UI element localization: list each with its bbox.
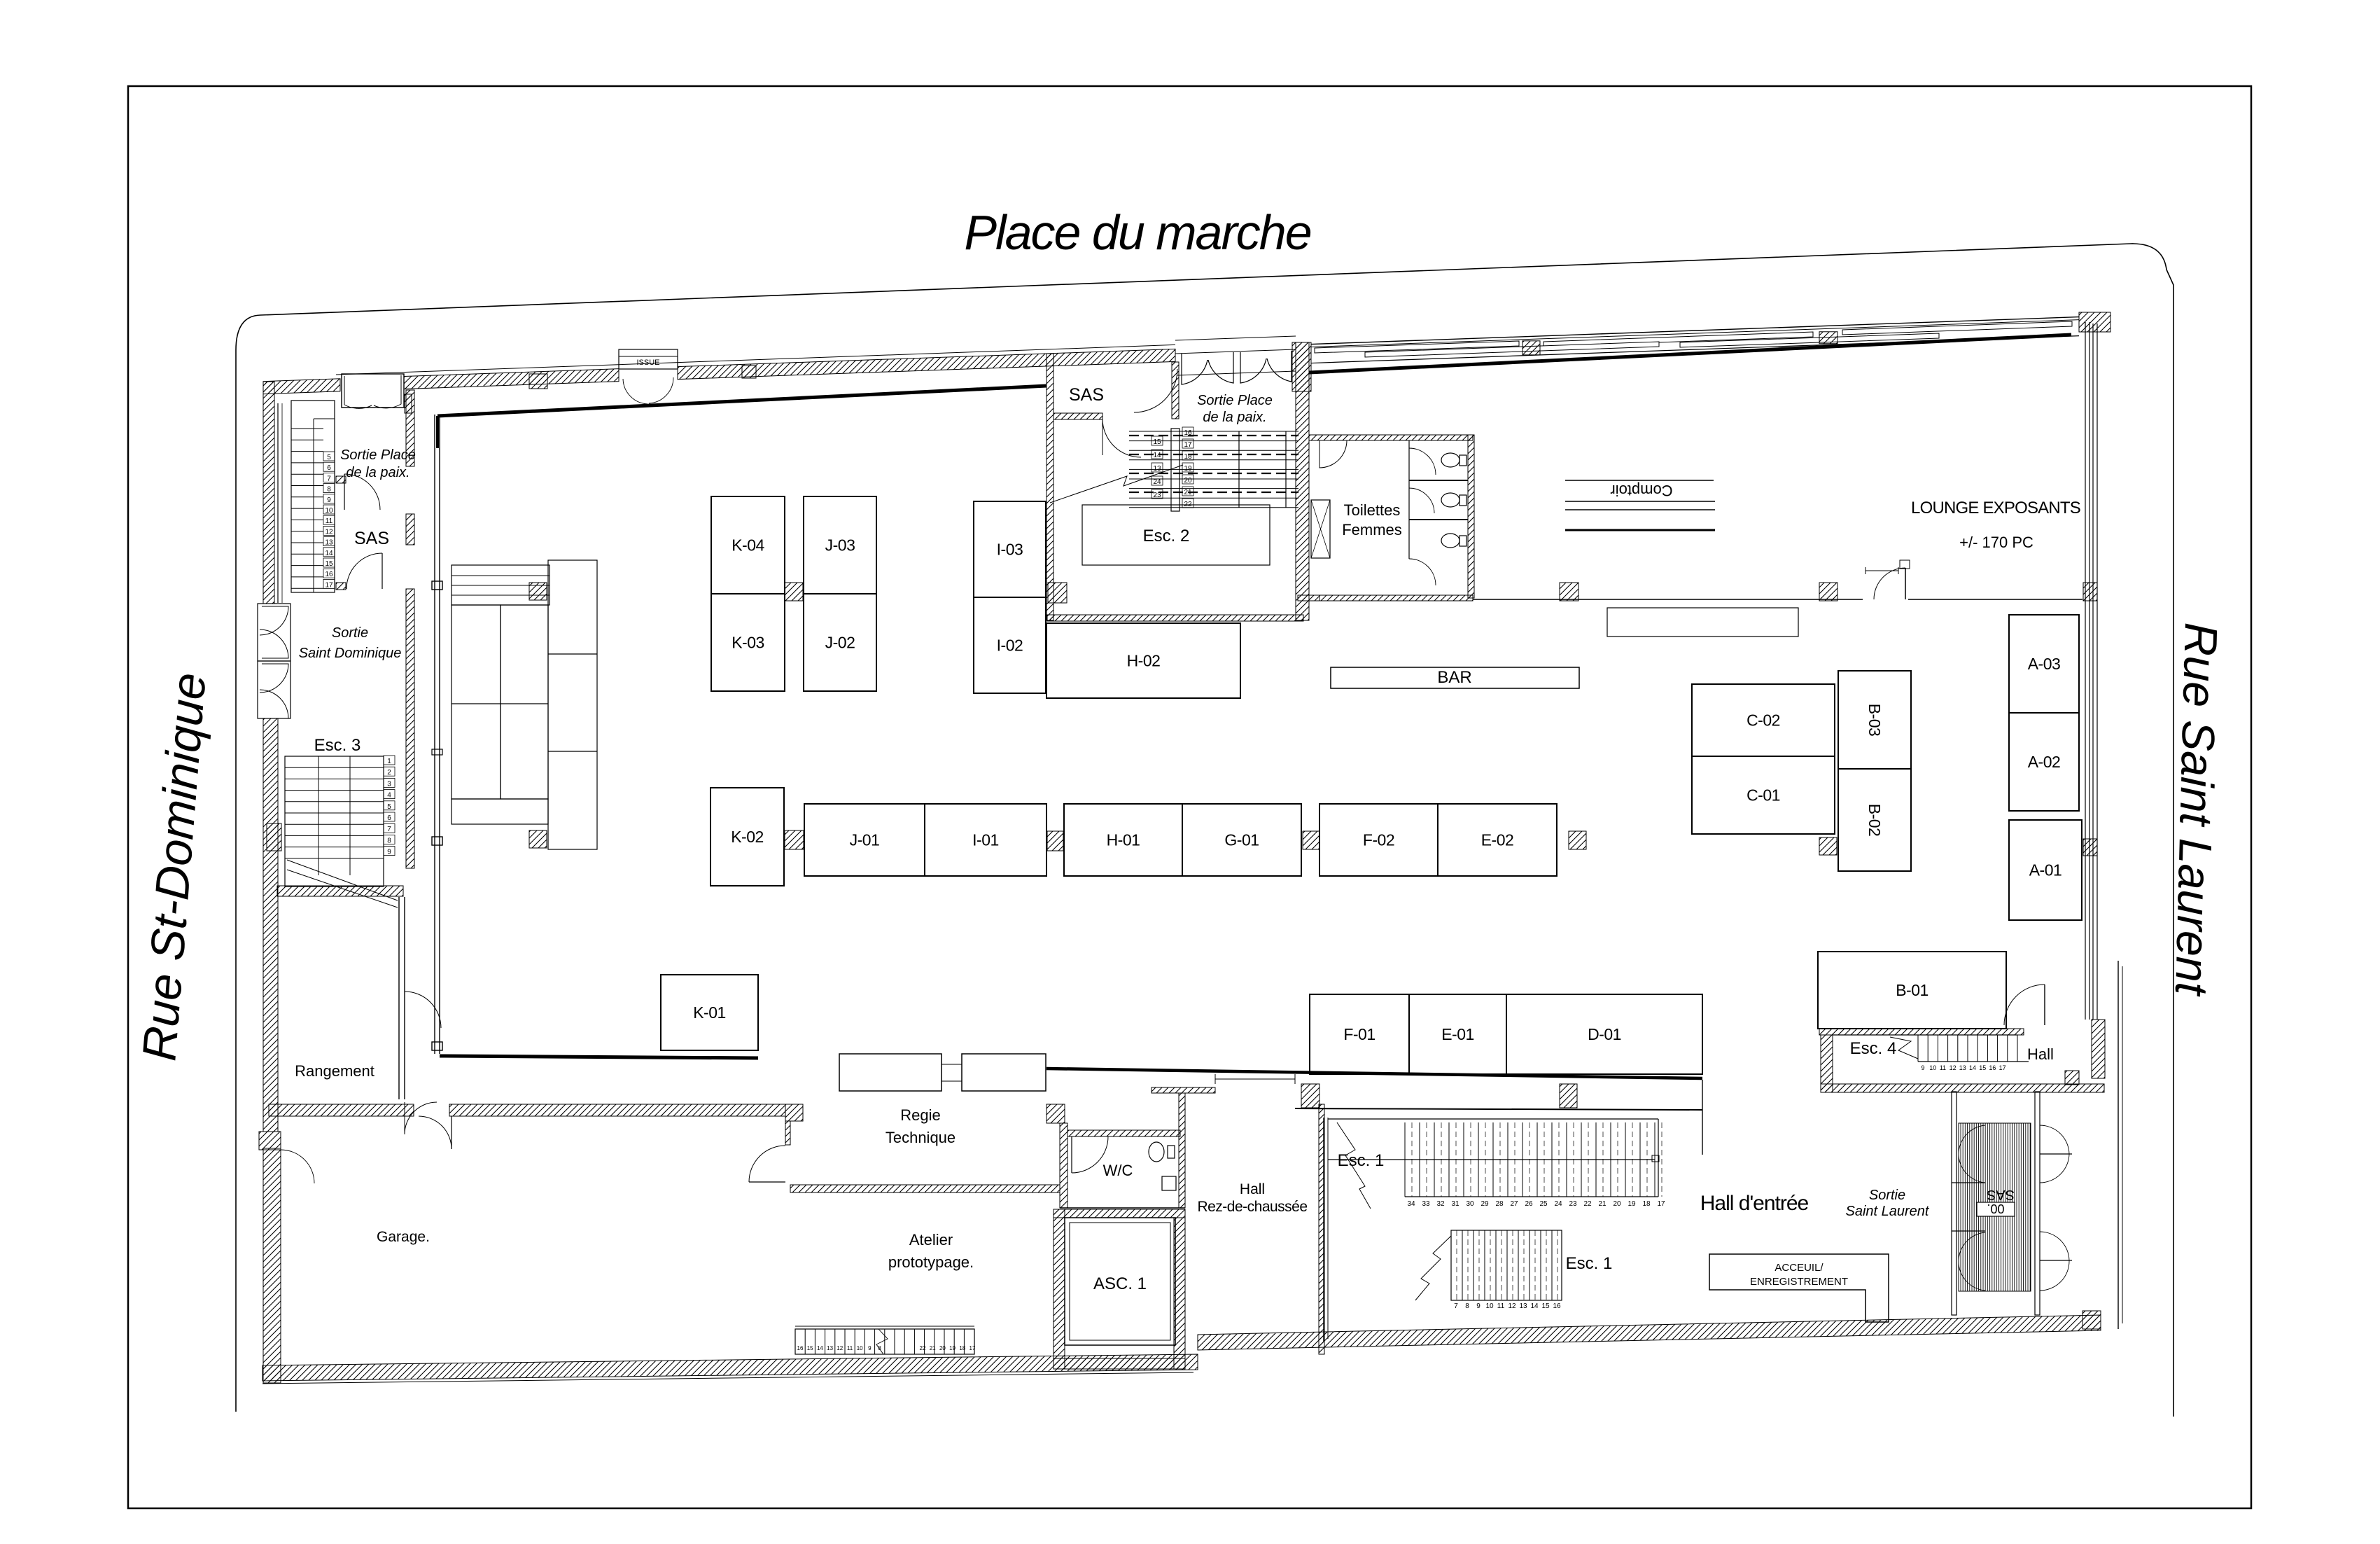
svg-text:9: 9 xyxy=(1921,1064,1924,1071)
svg-text:de la paix.: de la paix. xyxy=(346,465,409,480)
svg-text:B-02: B-02 xyxy=(1865,804,1884,837)
svg-text:00.: 00. xyxy=(1987,1202,2004,1216)
svg-text:14: 14 xyxy=(1530,1302,1539,1310)
svg-text:13: 13 xyxy=(1959,1064,1966,1071)
svg-text:prototypage.: prototypage. xyxy=(888,1253,974,1271)
svg-text:11: 11 xyxy=(1940,1064,1946,1071)
svg-text:11: 11 xyxy=(325,517,333,525)
svg-text:25: 25 xyxy=(1539,1200,1548,1208)
svg-text:12: 12 xyxy=(1508,1302,1516,1310)
svg-text:28: 28 xyxy=(1495,1200,1504,1208)
svg-text:32: 32 xyxy=(1436,1200,1445,1208)
svg-text:K-01: K-01 xyxy=(693,1003,726,1022)
svg-text:6: 6 xyxy=(327,464,331,472)
svg-text:27: 27 xyxy=(1510,1200,1518,1208)
svg-text:J-03: J-03 xyxy=(825,536,855,555)
svg-text:I-02: I-02 xyxy=(997,637,1023,655)
svg-text:Rangement: Rangement xyxy=(295,1062,374,1080)
svg-text:18: 18 xyxy=(1184,453,1192,461)
svg-text:H-02: H-02 xyxy=(1127,652,1161,670)
svg-text:13: 13 xyxy=(325,539,333,547)
svg-text:Sortie Place: Sortie Place xyxy=(340,447,416,463)
svg-text:Garage.: Garage. xyxy=(377,1229,430,1245)
svg-text:20: 20 xyxy=(939,1345,946,1351)
svg-text:22: 22 xyxy=(920,1345,926,1351)
svg-text:Esc. 4: Esc. 4 xyxy=(1850,1039,1897,1058)
svg-text:9: 9 xyxy=(327,496,331,504)
svg-text:15: 15 xyxy=(1541,1302,1550,1310)
svg-text:12: 12 xyxy=(836,1345,843,1351)
svg-text:A-03: A-03 xyxy=(2028,655,2061,673)
svg-text:13: 13 xyxy=(827,1345,833,1351)
svg-text:19: 19 xyxy=(949,1345,955,1351)
svg-text:Hall: Hall xyxy=(2027,1045,2054,1063)
svg-text:19: 19 xyxy=(1627,1200,1636,1208)
svg-text:17: 17 xyxy=(1657,1200,1665,1208)
svg-text:17: 17 xyxy=(1184,441,1192,449)
svg-text:15: 15 xyxy=(1979,1064,1986,1071)
svg-text:K-03: K-03 xyxy=(731,634,764,652)
svg-text:11: 11 xyxy=(1497,1302,1505,1310)
svg-text:21: 21 xyxy=(1598,1200,1606,1208)
svg-text:B-03: B-03 xyxy=(1865,704,1884,737)
svg-text:Rez-de-chaussée: Rez-de-chaussée xyxy=(1197,1199,1307,1215)
svg-text:K-02: K-02 xyxy=(731,828,764,846)
svg-text:9: 9 xyxy=(387,849,391,856)
svg-text:E-01: E-01 xyxy=(1441,1025,1474,1043)
svg-text:8: 8 xyxy=(1465,1302,1469,1310)
svg-text:Place du marche: Place du marche xyxy=(964,205,1310,260)
svg-text:20: 20 xyxy=(1184,477,1192,485)
svg-text:21: 21 xyxy=(1184,489,1192,496)
svg-text:15: 15 xyxy=(807,1345,813,1351)
svg-text:I-01: I-01 xyxy=(972,831,999,849)
svg-text:ISSUE: ISSUE xyxy=(636,359,659,367)
svg-text:7: 7 xyxy=(387,826,391,833)
svg-text:de la paix.: de la paix. xyxy=(1203,410,1266,425)
svg-text:Esc. 1: Esc. 1 xyxy=(1566,1254,1613,1273)
svg-text:34: 34 xyxy=(1407,1200,1415,1208)
svg-text:14: 14 xyxy=(817,1345,823,1351)
svg-text:21: 21 xyxy=(930,1345,936,1351)
svg-text:2: 2 xyxy=(387,769,391,777)
svg-text:Sortie: Sortie xyxy=(1869,1188,1905,1203)
svg-text:13: 13 xyxy=(1519,1302,1527,1310)
svg-text:Saint Dominique: Saint Dominique xyxy=(299,646,402,661)
svg-text:I-03: I-03 xyxy=(997,541,1023,559)
svg-text:8: 8 xyxy=(327,486,331,494)
svg-text:Toilettes: Toilettes xyxy=(1344,501,1401,519)
svg-text:BAR: BAR xyxy=(1437,668,1471,687)
svg-text:17: 17 xyxy=(325,581,333,589)
svg-text:J-02: J-02 xyxy=(825,634,855,652)
svg-text:Esc. 2: Esc. 2 xyxy=(1143,527,1190,545)
svg-text:Regie: Regie xyxy=(900,1106,940,1124)
svg-text:J-01: J-01 xyxy=(850,831,880,849)
svg-text:5: 5 xyxy=(327,454,331,461)
svg-text:ACCEUIL/: ACCEUIL/ xyxy=(1774,1262,1823,1274)
svg-text:A-01: A-01 xyxy=(2029,861,2062,879)
svg-text:26: 26 xyxy=(1525,1200,1533,1208)
svg-text:Technique: Technique xyxy=(885,1129,955,1146)
svg-text:C-02: C-02 xyxy=(1746,711,1780,730)
svg-text:E-02: E-02 xyxy=(1481,831,1514,849)
svg-text:ASC. 1: ASC. 1 xyxy=(1093,1274,1147,1293)
svg-text:7: 7 xyxy=(1454,1302,1458,1310)
svg-text:Femmes: Femmes xyxy=(1342,521,1402,538)
svg-text:C-01: C-01 xyxy=(1746,786,1780,805)
svg-text:10: 10 xyxy=(857,1345,863,1351)
svg-text:F-02: F-02 xyxy=(1363,831,1394,849)
svg-text:23: 23 xyxy=(1153,492,1161,499)
svg-text:ENREGISTREMENT: ENREGISTREMENT xyxy=(1750,1276,1848,1288)
svg-text:SAS: SAS xyxy=(354,529,389,548)
svg-text:18: 18 xyxy=(1642,1200,1651,1208)
svg-text:17: 17 xyxy=(969,1345,976,1351)
svg-text:Saint Laurent: Saint Laurent xyxy=(1846,1204,1930,1219)
svg-text:9: 9 xyxy=(1476,1302,1480,1310)
svg-text:14: 14 xyxy=(1969,1064,1976,1071)
svg-text:4: 4 xyxy=(387,792,391,800)
svg-text:17: 17 xyxy=(1999,1064,2006,1071)
svg-text:15: 15 xyxy=(325,560,333,568)
svg-text:Sortie: Sortie xyxy=(332,625,368,641)
svg-text:SAS: SAS xyxy=(1987,1187,2015,1202)
svg-text:W/C: W/C xyxy=(1103,1162,1133,1179)
svg-text:16: 16 xyxy=(797,1345,804,1351)
svg-text:Atelier: Atelier xyxy=(909,1231,953,1249)
svg-text:H-01: H-01 xyxy=(1107,831,1140,849)
svg-text:13: 13 xyxy=(1153,465,1161,473)
svg-text:F-01: F-01 xyxy=(1343,1025,1375,1043)
svg-text:3: 3 xyxy=(387,780,391,788)
svg-text:30: 30 xyxy=(1466,1200,1474,1208)
svg-text:6: 6 xyxy=(387,814,391,822)
svg-text:D-01: D-01 xyxy=(1588,1025,1621,1043)
svg-text:1: 1 xyxy=(387,758,391,765)
svg-text:16: 16 xyxy=(1989,1064,1996,1071)
svg-text:22: 22 xyxy=(1583,1200,1592,1208)
svg-text:12: 12 xyxy=(1949,1064,1956,1071)
svg-text:11: 11 xyxy=(847,1345,853,1351)
svg-text:18: 18 xyxy=(959,1345,965,1351)
svg-text:SAS: SAS xyxy=(1069,385,1104,405)
svg-text:K-04: K-04 xyxy=(731,536,764,555)
svg-text:23: 23 xyxy=(1569,1200,1577,1208)
svg-text:Comptoir: Comptoir xyxy=(1610,482,1672,499)
svg-text:10: 10 xyxy=(1929,1064,1936,1071)
svg-text:15: 15 xyxy=(1153,438,1161,446)
svg-text:Esc. 1: Esc. 1 xyxy=(1338,1151,1385,1170)
svg-text:LOUNGE EXPOSANTS: LOUNGE EXPOSANTS xyxy=(1911,499,2080,517)
svg-text:16: 16 xyxy=(1553,1302,1561,1310)
svg-text:19: 19 xyxy=(1184,465,1192,473)
svg-text:7: 7 xyxy=(327,475,331,482)
svg-text:G-01: G-01 xyxy=(1224,831,1259,849)
svg-text:14: 14 xyxy=(1153,452,1161,459)
svg-text:B-01: B-01 xyxy=(1896,981,1928,999)
svg-text:16: 16 xyxy=(1184,429,1192,437)
svg-text:31: 31 xyxy=(1451,1200,1459,1208)
svg-text:16: 16 xyxy=(325,571,333,578)
svg-text:Sortie Place: Sortie Place xyxy=(1197,393,1273,408)
svg-text:12: 12 xyxy=(325,528,333,536)
svg-text:5: 5 xyxy=(387,803,391,811)
svg-text:9: 9 xyxy=(868,1345,871,1351)
svg-text:20: 20 xyxy=(1613,1200,1621,1208)
svg-text:10: 10 xyxy=(325,507,333,515)
svg-text:29: 29 xyxy=(1480,1200,1489,1208)
svg-text:A-02: A-02 xyxy=(2028,753,2061,771)
svg-text:Esc. 3: Esc. 3 xyxy=(314,736,361,755)
svg-text:33: 33 xyxy=(1422,1200,1430,1208)
svg-text:8: 8 xyxy=(387,837,391,844)
svg-text:+/- 170 PC: +/- 170 PC xyxy=(1959,534,2033,551)
svg-text:Rue Saint Laurent: Rue Saint Laurent xyxy=(2166,622,2227,997)
svg-text:10: 10 xyxy=(1485,1302,1494,1310)
svg-text:14: 14 xyxy=(325,550,333,557)
svg-text:24: 24 xyxy=(1153,478,1161,486)
svg-text:Hall d'entrée: Hall d'entrée xyxy=(1700,1192,1809,1215)
svg-text:24: 24 xyxy=(1554,1200,1562,1208)
svg-text:Hall: Hall xyxy=(1240,1181,1265,1197)
